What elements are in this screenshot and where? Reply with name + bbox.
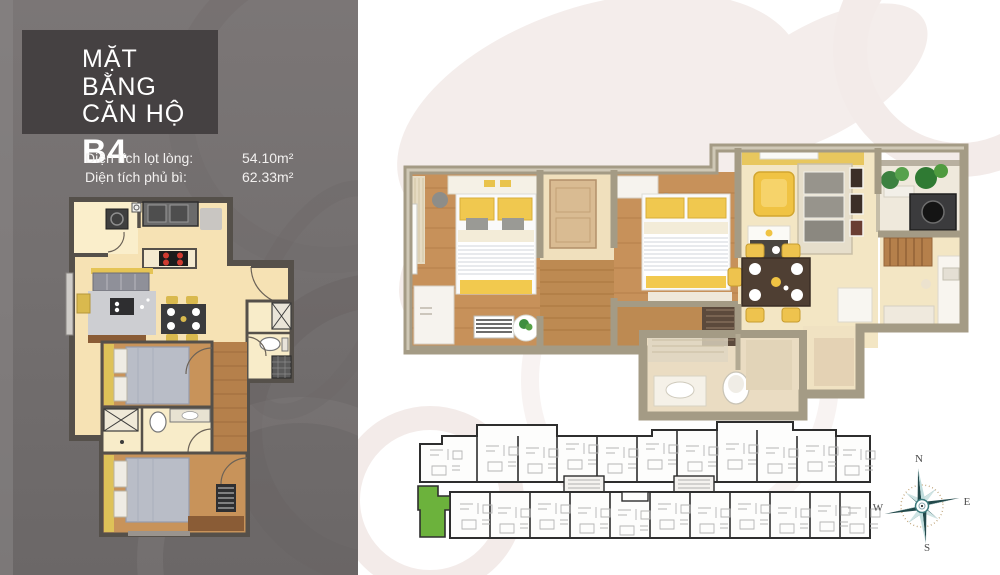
compass-west-label: W [873,502,884,514]
washer-icon [106,209,128,229]
stool [432,192,448,208]
floor-plan-3d [398,138,990,430]
wall-art [850,220,863,236]
keyplan-bottom-row [450,492,880,538]
door [550,180,596,248]
floor-mat [188,516,244,531]
coffee-table [110,298,134,315]
pillow [114,491,127,517]
area-gross-label: Diện tích phủ bì: [85,168,242,187]
cushion [804,196,844,218]
bath-mat [746,340,792,390]
title-line-1: MẶT BẰNG [82,46,218,101]
title-line-2: CĂN HỘ [82,101,218,129]
area-row-gross: Diện tích phủ bì: 62.33m² [85,168,312,187]
cushion [804,220,844,242]
entry-mat [814,338,854,386]
plan2d-bedroom-1 [102,342,212,407]
area-net-label: Diện tích lọt lòng: [85,149,242,168]
title-box: MẶT BẰNG CĂN HỘ B4 [22,30,218,134]
shelf [884,238,932,266]
toilet-icon [260,338,280,351]
railing [880,160,964,166]
bed-runner [460,280,532,294]
pillow [688,198,726,218]
area-net-value: 54.10m² [242,149,312,168]
pillow [460,198,494,220]
cabinet [838,288,872,322]
plan2d-utility-room [73,201,139,255]
plant-icon [915,167,937,189]
compass-rose: N E S W [870,450,976,554]
pillow [114,349,127,373]
armchair [77,294,90,313]
window-strip [128,531,190,536]
keyplan-top-row [420,422,875,482]
compass-north-label: N [915,453,923,465]
fan-icon [922,201,944,223]
wall-art [850,168,863,188]
plan2d-bathroom-1 [247,301,291,380]
pillow [498,198,532,220]
cushion [804,172,844,194]
area-gross-value: 62.33m² [242,168,312,187]
plan2d-bathroom-2 [102,407,212,453]
toilet-icon [150,412,166,432]
area-row-net: Diện tích lọt lòng: 54.10m² [85,149,312,168]
pillow [646,198,684,218]
bed [126,458,189,522]
plan2d-bedroom-2 [102,453,247,536]
plan2d-corridor [212,342,247,453]
lower-cabinet [884,306,934,324]
area-info: Diện tích lọt lòng: 54.10m² Diện tích ph… [85,149,312,187]
wall-art [850,194,863,214]
floor-plan-2d [58,196,308,541]
keyplan-highlighted-unit [418,486,450,537]
wardrobe [414,286,454,344]
brochure-page: MẶT BẰNG CĂN HỘ B4 Diện tích lọt lòng: 5… [0,0,1000,575]
window-bay [66,273,73,335]
kitchen-mat [200,208,222,230]
pillow [114,461,127,487]
left-panel: MẶT BẰNG CĂN HỘ B4 Diện tích lọt lòng: 5… [0,0,358,575]
bed [126,347,189,404]
keyplan [412,420,882,545]
compass-east-label: E [964,496,971,508]
pillow [114,377,127,401]
compass-south-label: S [924,542,930,554]
shower [272,356,291,378]
compass-star [880,464,964,548]
